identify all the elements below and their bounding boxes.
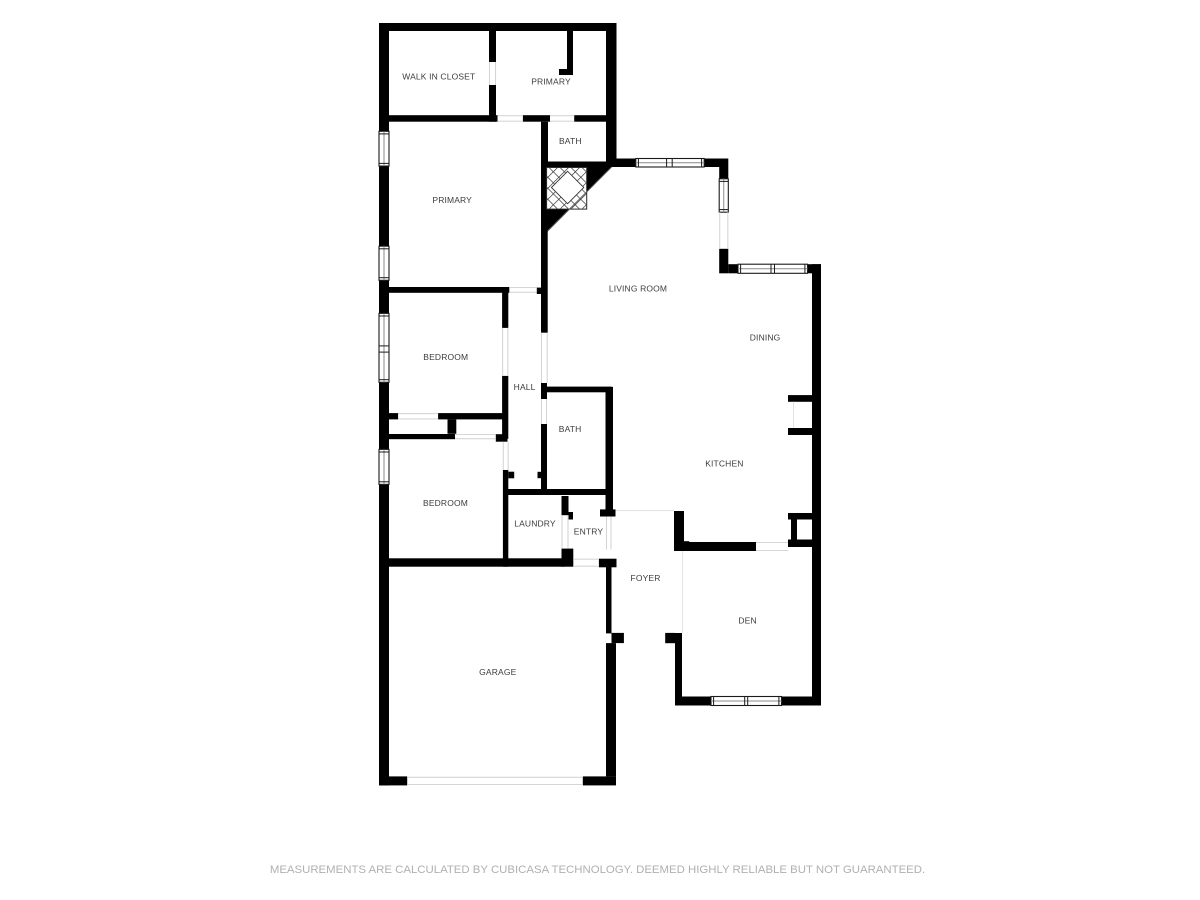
svg-text:BATH: BATH <box>559 136 582 146</box>
svg-text:LIVING ROOM: LIVING ROOM <box>609 284 667 294</box>
svg-text:DEN: DEN <box>738 615 756 625</box>
svg-text:BEDROOM: BEDROOM <box>423 498 468 508</box>
svg-text:WALK IN CLOSET: WALK IN CLOSET <box>402 71 475 81</box>
svg-text:ENTRY: ENTRY <box>574 527 604 537</box>
svg-text:MEASUREMENTS ARE CALCULATED BY: MEASUREMENTS ARE CALCULATED BY CUBICASA … <box>270 864 925 876</box>
svg-text:PRIMARY: PRIMARY <box>531 76 571 86</box>
svg-text:GARAGE: GARAGE <box>479 667 516 677</box>
svg-text:FOYER: FOYER <box>630 573 660 583</box>
svg-text:BATH: BATH <box>559 424 582 434</box>
svg-text:HALL: HALL <box>514 382 536 392</box>
svg-text:PRIMARY: PRIMARY <box>432 195 472 205</box>
svg-text:BEDROOM: BEDROOM <box>423 352 468 362</box>
svg-text:DINING: DINING <box>750 332 781 342</box>
svg-text:KITCHEN: KITCHEN <box>705 458 743 468</box>
svg-text:LAUNDRY: LAUNDRY <box>514 519 556 529</box>
